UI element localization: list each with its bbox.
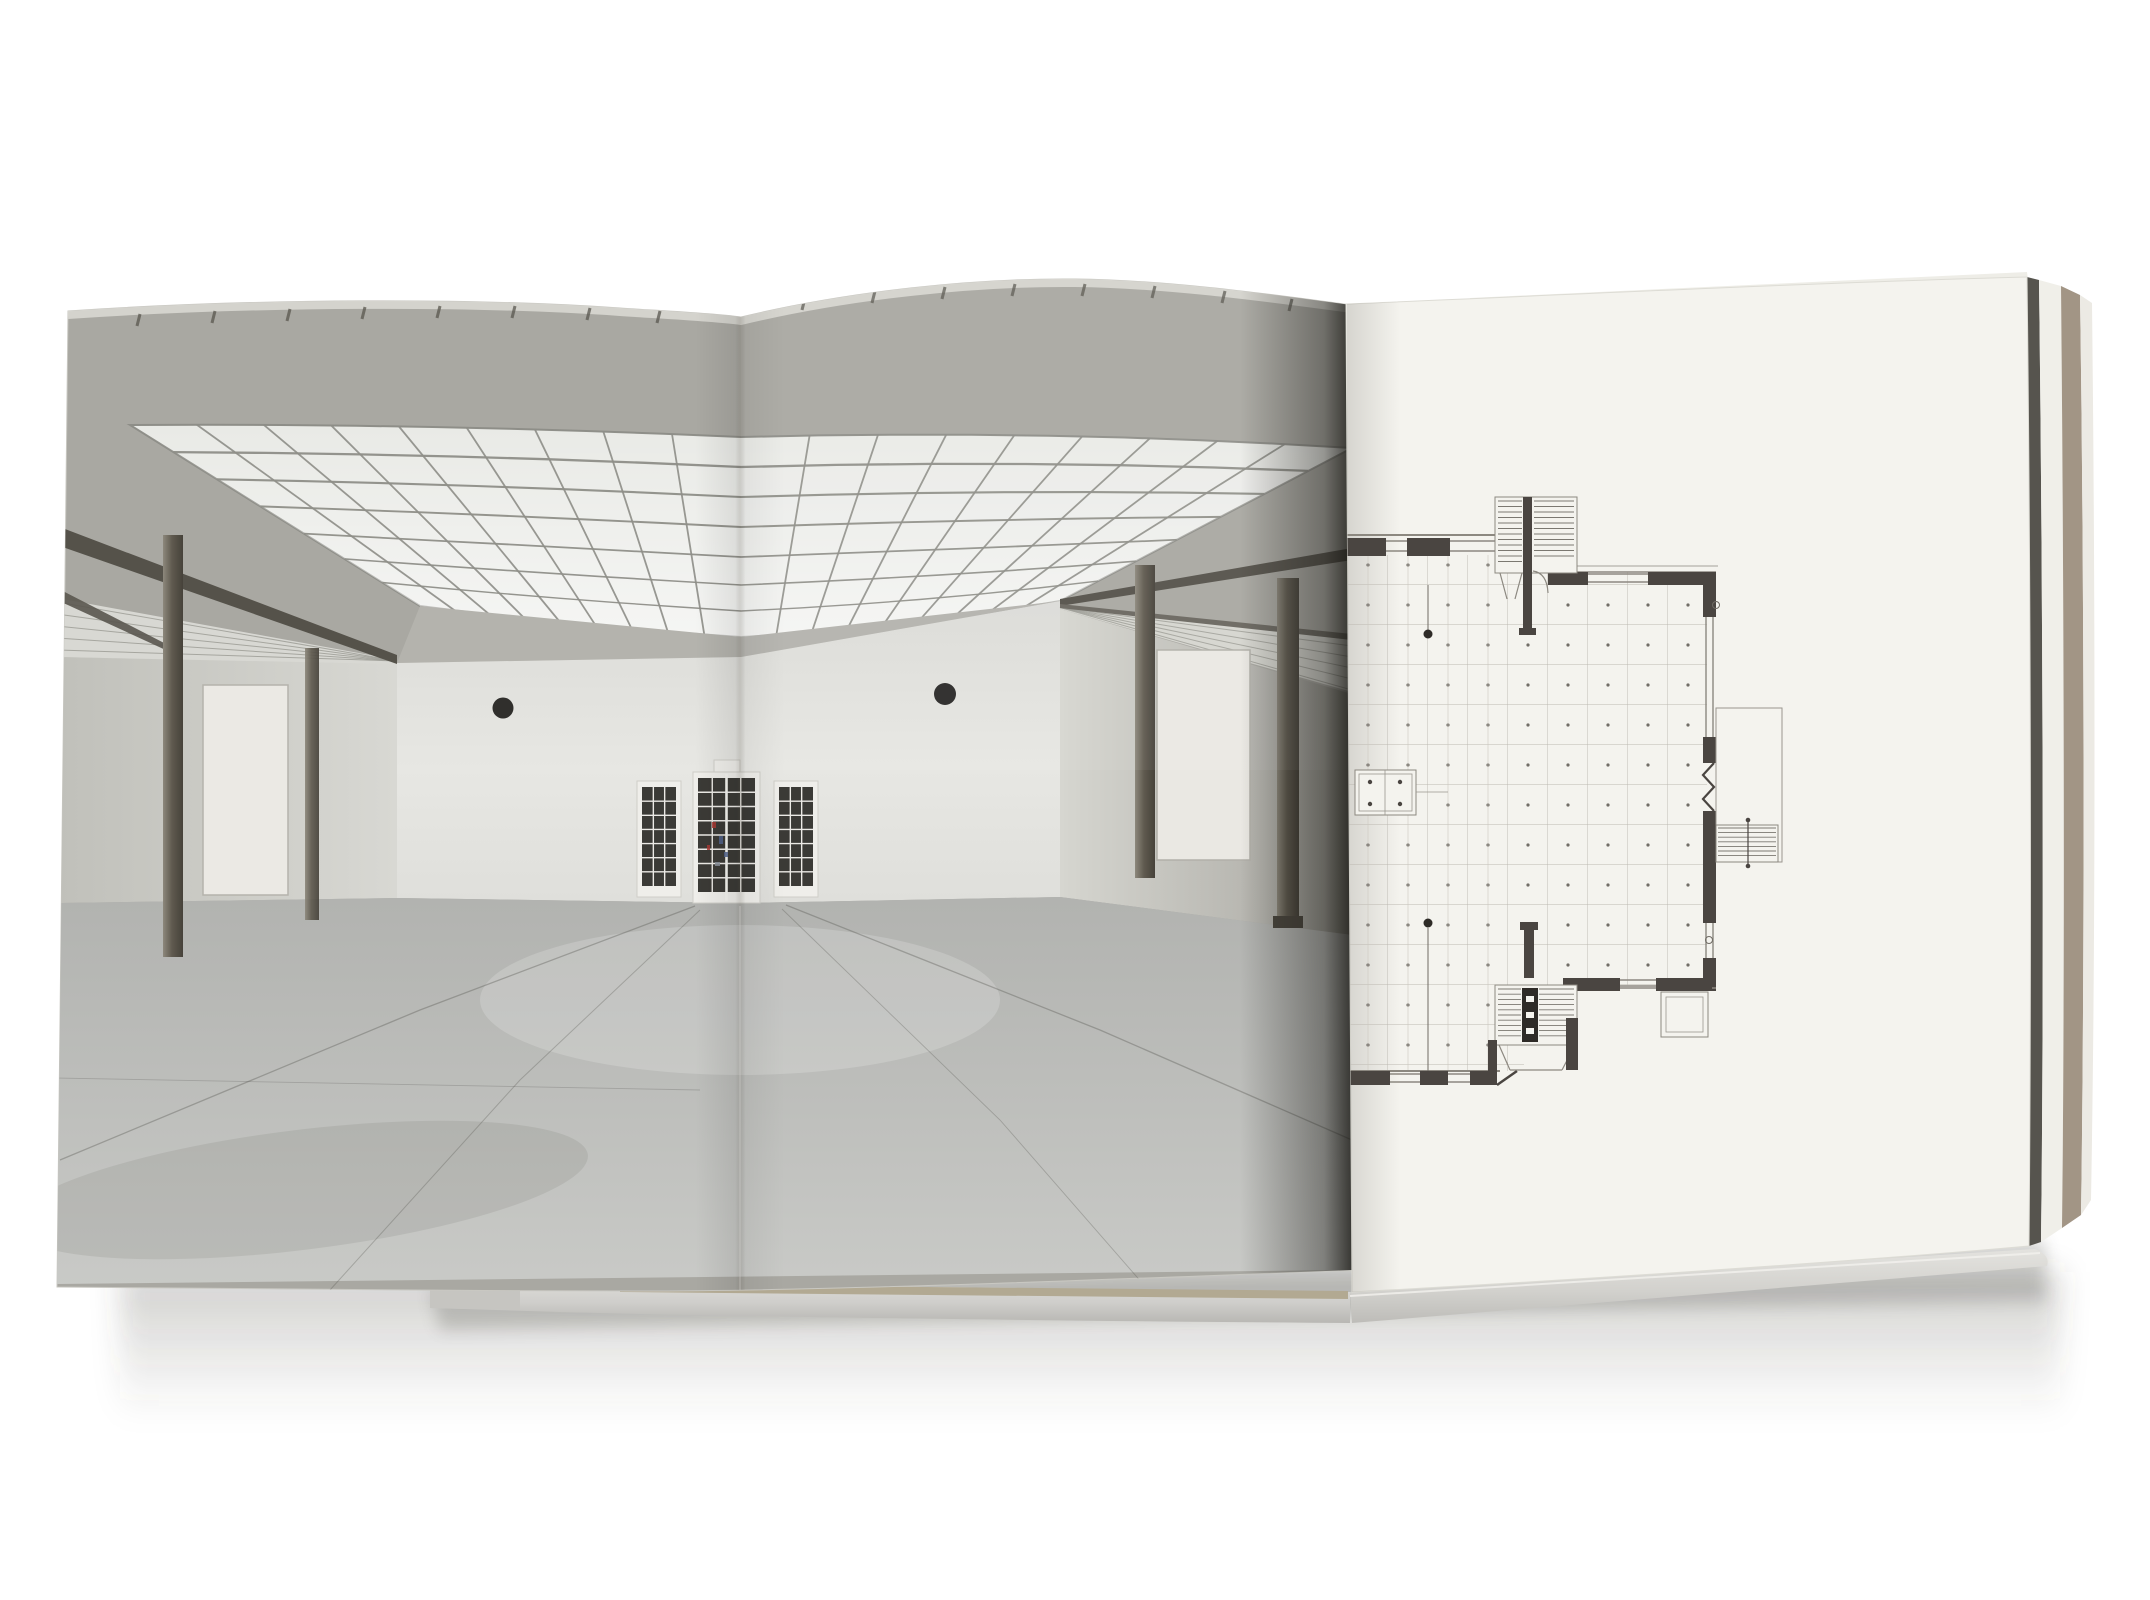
page-fold [695,270,785,1300]
gutter-shadow [1240,270,1352,1300]
plan-page [1345,270,2030,1300]
page-edge-white-inner [2039,280,2064,1242]
column-far-left [163,535,183,957]
gallery-floor [5,897,1352,1292]
column-mid-left [305,648,319,920]
cover-board-edge [2061,286,2084,1228]
plan-pool [1661,992,1708,1037]
photo-page [5,270,1352,1300]
wall-panel-left [203,685,288,895]
book-product-photo [0,0,2150,1600]
porthole-left [493,698,514,719]
book-spread-svg [0,0,2150,1600]
plan-stair-right [1716,818,1778,869]
